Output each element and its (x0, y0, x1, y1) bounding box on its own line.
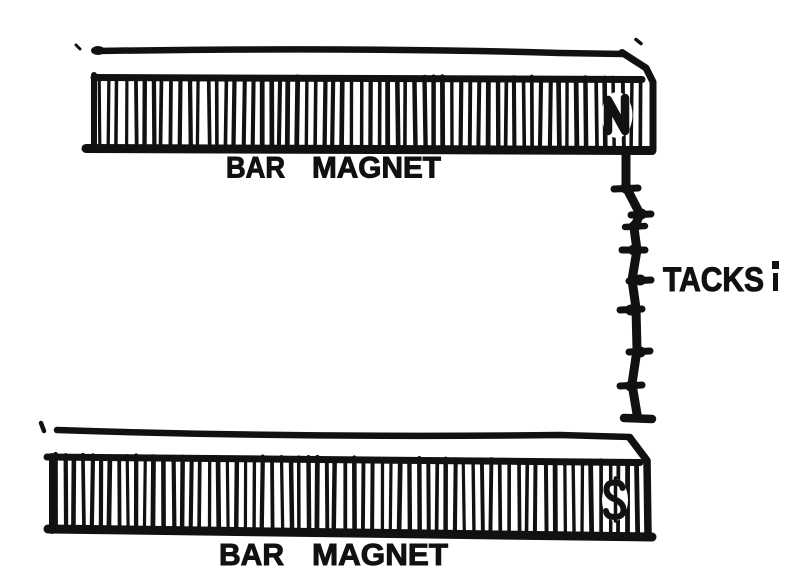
svg-text:MAGNET: MAGNET (312, 152, 441, 185)
svg-text:BAR: BAR (226, 152, 285, 185)
svg-text:MAGNET: MAGNET (312, 537, 448, 572)
svg-text:TACKS: TACKS (663, 261, 764, 299)
svg-text:BAR: BAR (219, 537, 284, 572)
